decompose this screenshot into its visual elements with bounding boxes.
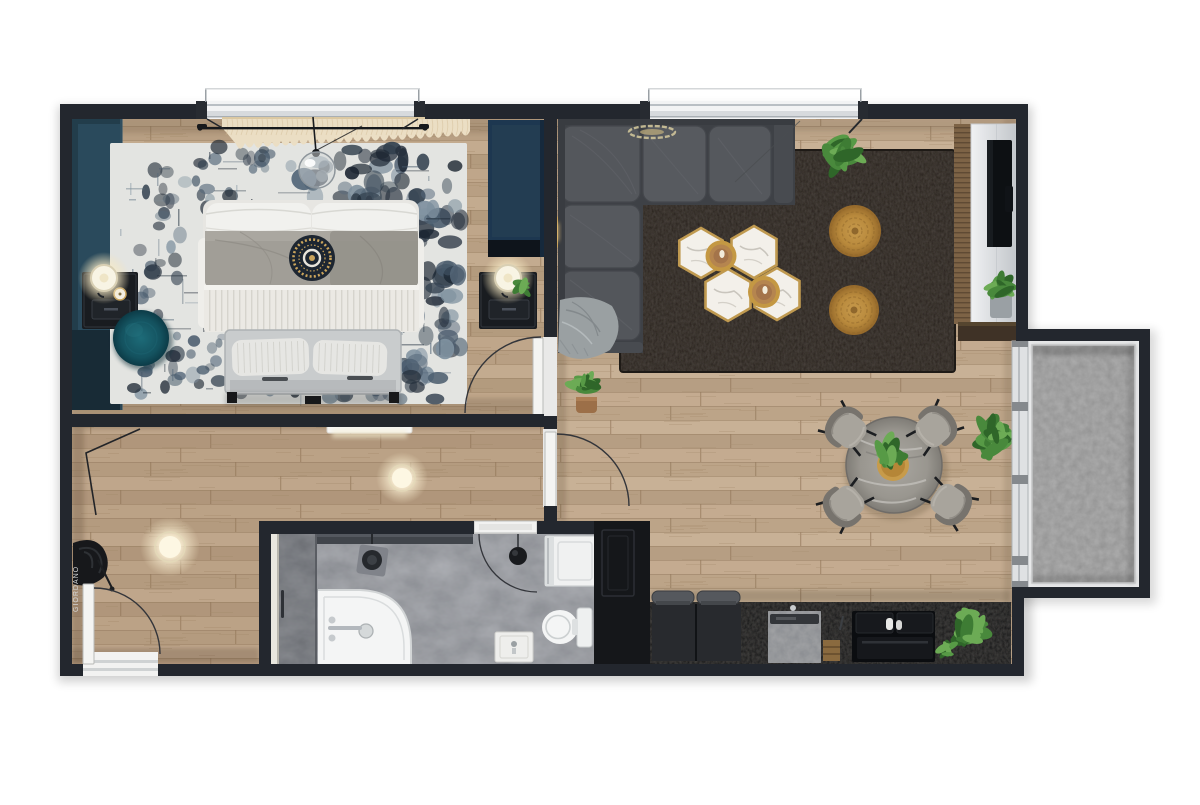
svg-text:GIORDANO: GIORDANO xyxy=(73,566,80,612)
